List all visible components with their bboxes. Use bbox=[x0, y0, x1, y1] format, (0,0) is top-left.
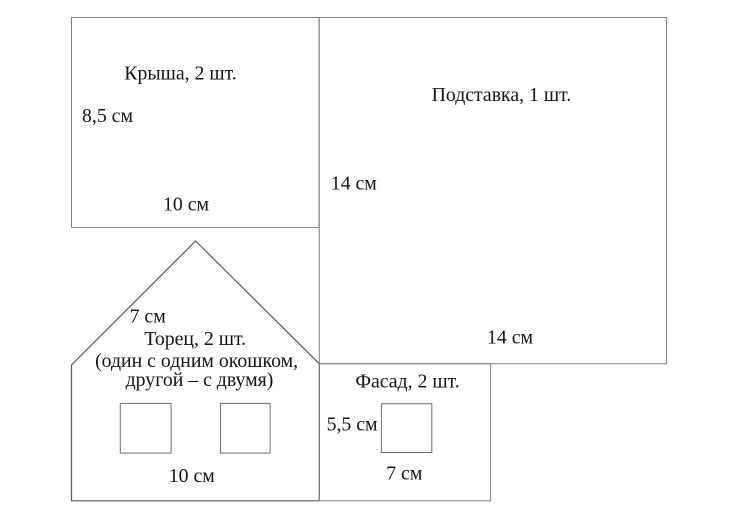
svg-text:7 см: 7 см bbox=[386, 463, 423, 485]
svg-text:Торец, 2 шт.: Торец, 2 шт. bbox=[144, 328, 246, 350]
svg-text:5,5 см: 5,5 см bbox=[327, 414, 378, 436]
svg-text:Подставка, 1 шт.: Подставка, 1 шт. bbox=[432, 84, 572, 106]
svg-text:Крыша, 2 шт.: Крыша, 2 шт. bbox=[124, 63, 236, 85]
svg-text:14 см: 14 см bbox=[487, 326, 534, 348]
svg-text:10 см: 10 см bbox=[169, 465, 216, 487]
svg-text:другой – с двумя): другой – с двумя) bbox=[126, 369, 274, 391]
svg-text:8,5 см: 8,5 см bbox=[82, 105, 133, 127]
svg-text:14 см: 14 см bbox=[331, 172, 378, 194]
svg-text:Фасад, 2 шт.: Фасад, 2 шт. bbox=[355, 371, 459, 393]
svg-text:7 см: 7 см bbox=[130, 306, 167, 328]
svg-text:10 см: 10 см bbox=[163, 194, 210, 216]
